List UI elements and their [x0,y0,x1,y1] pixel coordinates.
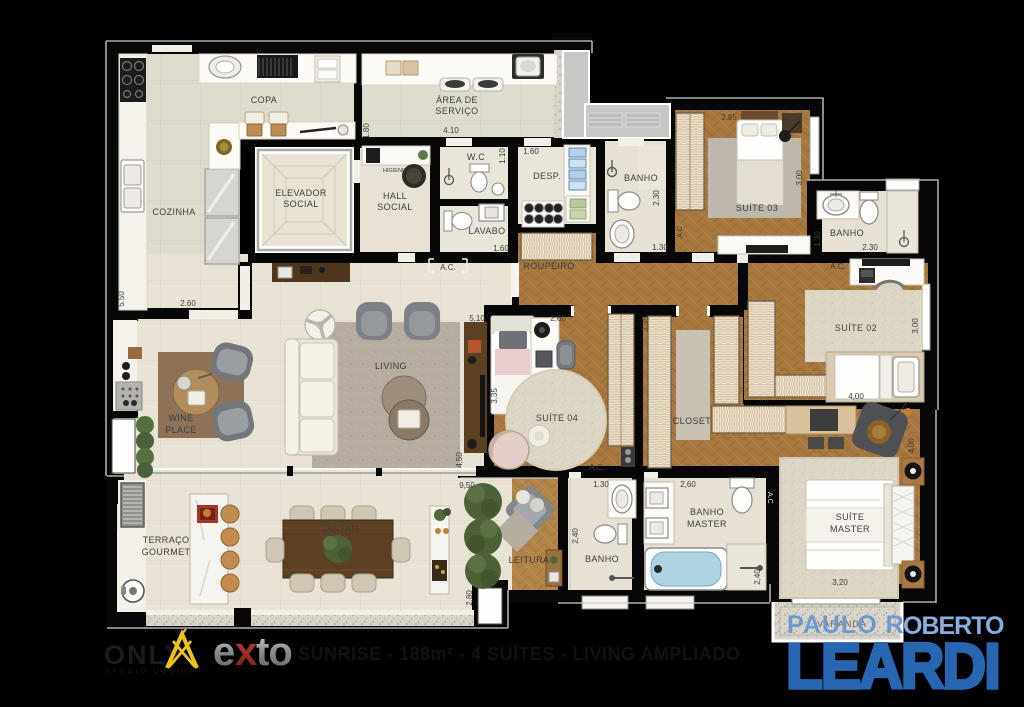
svg-text:ÁREA DE: ÁREA DE [436,95,478,105]
svg-text:9,50: 9,50 [459,481,475,490]
svg-text:A.C: A.C [766,492,773,504]
svg-text:A.C.: A.C. [830,262,846,271]
svg-text:1.30: 1.30 [813,231,822,247]
svg-text:x: x [235,630,257,674]
svg-text:1.30: 1.30 [593,480,609,489]
svg-text:COZINHA: COZINHA [152,207,195,217]
svg-text:ELEVADOR: ELEVADOR [275,188,327,198]
svg-text:2,60: 2,60 [680,480,696,489]
svg-text:ROUPEIRO: ROUPEIRO [523,261,574,271]
svg-text:W.C: W.C [467,152,485,162]
svg-text:2,40: 2,40 [571,528,580,544]
svg-text:WINE: WINE [168,413,193,423]
svg-text:SUÍTE 04: SUÍTE 04 [536,413,578,423]
svg-text:HIGIENIZAÇÃO: HIGIENIZAÇÃO [383,167,423,174]
svg-text:4,00: 4,00 [907,438,916,454]
svg-text:2.30: 2.30 [652,190,661,206]
svg-text:SUNRISE - 188m² - 4 SUÍTES - L: SUNRISE - 188m² - 4 SUÍTES - LIVING AMPL… [298,643,740,664]
svg-text:SUÍTE: SUÍTE [836,512,865,522]
svg-text:MASTER: MASTER [830,524,870,534]
svg-text:A.C: A.C [677,226,684,238]
svg-text:JANTAR: JANTAR [322,524,359,534]
svg-text:to: to [256,630,292,674]
svg-text:HALL: HALL [383,191,407,201]
svg-text:3.00: 3.00 [911,318,920,334]
svg-text:LEARDI: LEARDI [786,630,999,702]
svg-text:5.50: 5.50 [117,291,126,307]
svg-text:3.35: 3.35 [490,388,499,404]
svg-text:MASTER: MASTER [687,519,727,529]
svg-text:2,40: 2,40 [753,569,762,585]
svg-text:CLOSET: CLOSET [673,416,712,426]
svg-text:3,35: 3,35 [641,316,650,332]
svg-text:BANHO: BANHO [585,554,619,564]
svg-text:TERRAÇO: TERRAÇO [143,535,190,545]
svg-text:SOCIAL: SOCIAL [283,199,318,209]
svg-text:PLACE: PLACE [165,425,197,435]
svg-text:4,50: 4,50 [455,452,464,468]
svg-text:LEITURA: LEITURA [509,555,550,565]
svg-text:GOURMET: GOURMET [142,547,191,557]
svg-text:BANHO: BANHO [690,507,724,517]
svg-text:SOCIAL: SOCIAL [377,202,412,212]
svg-text:LAVABO: LAVABO [468,226,505,236]
svg-text:1.30: 1.30 [652,243,668,252]
svg-text:1.80: 1.80 [362,123,371,139]
svg-text:DESP.: DESP. [533,171,561,181]
svg-text:e: e [213,630,234,674]
svg-text:A.C.: A.C. [440,263,456,272]
svg-text:A.C.: A.C. [589,463,605,472]
svg-text:1.60: 1.60 [493,244,509,253]
svg-text:2.60: 2.60 [180,299,196,308]
svg-text:4.10: 4.10 [443,126,459,135]
svg-text:2.60: 2.60 [550,314,566,323]
svg-text:2,80: 2,80 [465,590,474,606]
svg-text:5,10: 5,10 [469,314,485,323]
svg-text:BANHO: BANHO [624,173,658,183]
svg-text:1.10: 1.10 [498,148,507,164]
svg-text:3.00: 3.00 [795,170,804,186]
svg-text:STUDIO DESIGN: STUDIO DESIGN [105,668,198,675]
svg-text:LIVING: LIVING [375,361,407,371]
svg-text:4,00: 4,00 [848,392,864,401]
svg-text:SUÍTE 03: SUÍTE 03 [736,203,778,213]
svg-text:3,20: 3,20 [832,578,848,587]
svg-text:COPA: COPA [251,95,277,105]
svg-text:2.30: 2.30 [862,243,878,252]
svg-text:2.85: 2.85 [721,113,737,122]
svg-text:BANHO: BANHO [830,228,864,238]
svg-text:SERVIÇO: SERVIÇO [435,106,478,116]
svg-text:SUÍTE 02: SUÍTE 02 [835,323,877,333]
svg-text:1.60: 1.60 [523,147,539,156]
